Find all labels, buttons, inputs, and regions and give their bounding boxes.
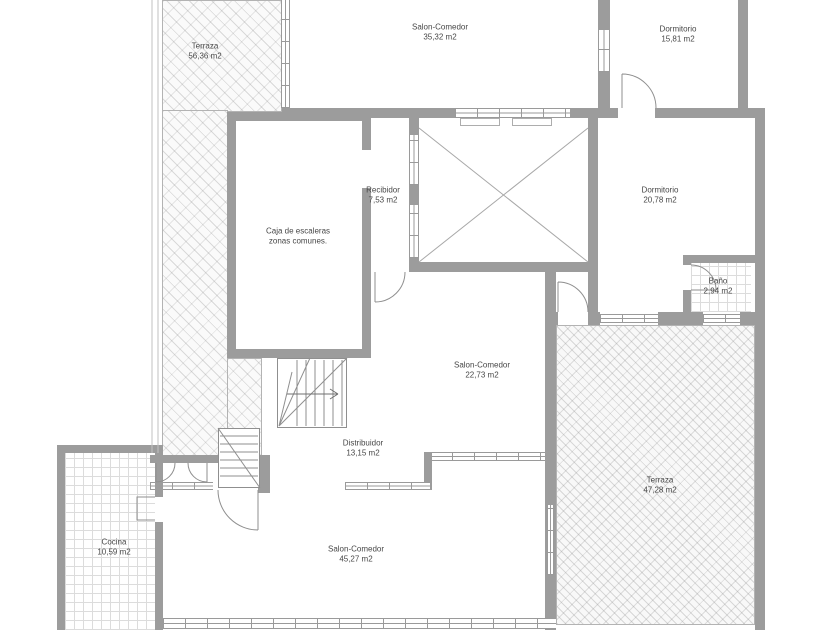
door-arc: [218, 490, 258, 530]
room-name: Salon-Comedor: [454, 361, 510, 371]
room-name: Recibidor: [366, 186, 400, 196]
door-arc: [558, 282, 588, 312]
room-area: 7,53 m2: [366, 196, 400, 206]
room-area: 15,81 m2: [660, 35, 697, 45]
room-label-terraza-left: Terraza 56,36 m2: [188, 42, 221, 63]
floor-plan-canvas: Terraza 56,36 m2 Salon-Comedor 35,32 m2 …: [0, 0, 840, 630]
room-name: Baño: [704, 277, 733, 287]
room-area: 10,59 m2: [97, 548, 130, 558]
door-arc: [188, 463, 207, 482]
room-label-recibidor: Recibidor 7,53 m2: [366, 186, 400, 207]
room-name: Salon-Comedor: [412, 23, 468, 33]
room-name: Terraza: [643, 476, 676, 486]
room-label-distribuidor: Distribuidor 13,15 m2: [343, 439, 383, 460]
main-staircase: [279, 358, 347, 426]
room-name: Distribuidor: [343, 439, 383, 449]
door-arc: [622, 74, 656, 108]
room-label-dormitorio-right: Dormitorio 20,78 m2: [642, 186, 679, 207]
room-label-bano: Baño 2,94 m2: [704, 277, 733, 298]
room-area: 47,28 m2: [643, 486, 676, 496]
room-label-caja-escaleras: Caja de escaleras zonas comunes.: [266, 227, 330, 248]
plan-linework: [0, 0, 840, 630]
room-label-salon-mid: Salon-Comedor 22,73 m2: [454, 361, 510, 382]
room-name: Cocina: [97, 538, 130, 548]
room-area: 56,36 m2: [188, 52, 221, 62]
room-name: Caja de escaleras: [266, 227, 330, 237]
room-name: Dormitorio: [660, 25, 697, 35]
room-label-salon-bottom: Salon-Comedor 45,27 m2: [328, 545, 384, 566]
room-label-dormitorio-top: Dormitorio 15,81 m2: [660, 25, 697, 46]
room-area: 13,15 m2: [343, 449, 383, 459]
room-area: 22,73 m2: [454, 371, 510, 381]
room-name: Terraza: [188, 42, 221, 52]
door-arc: [375, 272, 405, 302]
room-area: zonas comunes.: [266, 237, 330, 247]
room-label-salon-top: Salon-Comedor 35,32 m2: [412, 23, 468, 44]
boundary-lines: [152, 0, 158, 453]
room-area: 35,32 m2: [412, 33, 468, 43]
room-name: Dormitorio: [642, 186, 679, 196]
room-name: Salon-Comedor: [328, 545, 384, 555]
room-area: 2,94 m2: [704, 287, 733, 297]
room-label-cocina: Cocina 10,59 m2: [97, 538, 130, 559]
kitchen-door-recess: [137, 497, 155, 520]
room-area: 20,78 m2: [642, 196, 679, 206]
door-arc: [156, 463, 175, 482]
patio-cross-icon: [419, 128, 588, 262]
room-area: 45,27 m2: [328, 555, 384, 565]
room-label-terraza-right: Terraza 47,28 m2: [643, 476, 676, 497]
small-staircase: [218, 428, 260, 488]
